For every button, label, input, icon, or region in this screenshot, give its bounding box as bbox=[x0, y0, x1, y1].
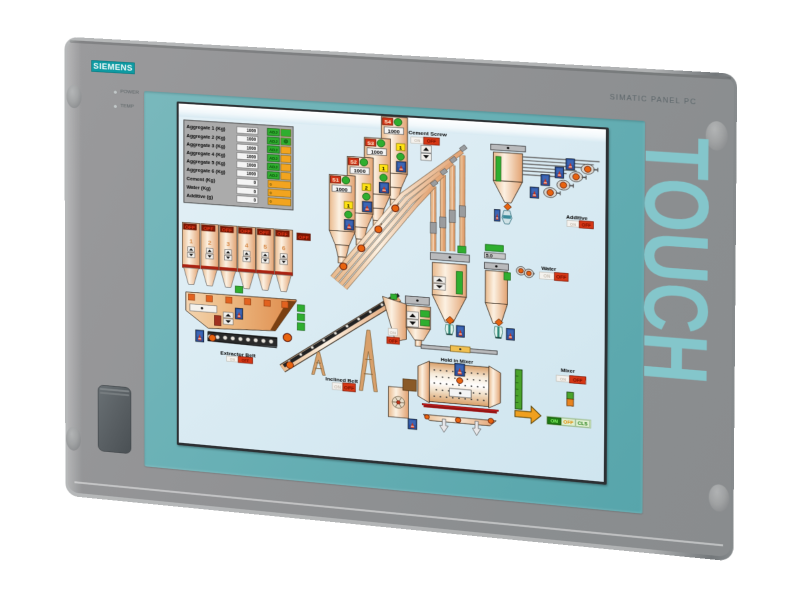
svg-text:S1: S1 bbox=[332, 177, 339, 184]
svg-text:ADJ: ADJ bbox=[269, 138, 277, 144]
svg-text:ADJ: ADJ bbox=[269, 129, 277, 135]
svg-text:OFF: OFF bbox=[389, 338, 399, 344]
svg-text:1: 1 bbox=[399, 145, 402, 151]
svg-text:ADJ: ADJ bbox=[269, 155, 277, 161]
svg-text:OFF: OFF bbox=[573, 377, 583, 383]
svg-text:CLS: CLS bbox=[578, 421, 588, 427]
svg-text:OFF: OFF bbox=[259, 230, 269, 237]
svg-text:Water: Water bbox=[541, 266, 556, 273]
svg-text:OFF: OFF bbox=[242, 358, 250, 363]
svg-text:OFF: OFF bbox=[582, 222, 592, 228]
svg-text:OFF: OFF bbox=[240, 228, 250, 235]
svg-text:OFF: OFF bbox=[563, 420, 573, 426]
svg-text:1000: 1000 bbox=[247, 128, 257, 134]
svg-text:TOUCH: TOUCH bbox=[641, 134, 716, 387]
svg-text:ADJ: ADJ bbox=[269, 147, 277, 153]
svg-text:5.0: 5.0 bbox=[486, 253, 493, 259]
svg-text:ON: ON bbox=[550, 418, 557, 424]
svg-text:OFF: OFF bbox=[277, 231, 287, 238]
svg-text:1: 1 bbox=[189, 238, 193, 245]
svg-text:S2: S2 bbox=[350, 159, 357, 166]
svg-text:ADJ: ADJ bbox=[269, 173, 277, 179]
svg-text:1: 1 bbox=[347, 203, 350, 209]
svg-text:ON: ON bbox=[230, 357, 236, 361]
svg-text:ON: ON bbox=[334, 384, 341, 390]
svg-text:2: 2 bbox=[208, 239, 212, 246]
svg-text:4: 4 bbox=[245, 242, 249, 249]
svg-text:1000: 1000 bbox=[354, 169, 366, 176]
svg-text:1000: 1000 bbox=[371, 150, 383, 157]
svg-text:OFF: OFF bbox=[298, 235, 308, 242]
svg-text:3: 3 bbox=[226, 241, 230, 248]
svg-text:OFF: OFF bbox=[222, 227, 232, 234]
svg-text:OFF: OFF bbox=[203, 226, 213, 233]
svg-text:ON: ON bbox=[560, 377, 567, 382]
svg-text:S3: S3 bbox=[367, 140, 374, 147]
svg-text:5: 5 bbox=[263, 243, 267, 250]
svg-text:1000: 1000 bbox=[247, 162, 257, 168]
svg-text:ON: ON bbox=[414, 139, 420, 144]
svg-text:2: 2 bbox=[365, 185, 368, 191]
svg-text:OFF: OFF bbox=[185, 224, 195, 231]
svg-text:ON: ON bbox=[544, 273, 551, 279]
svg-text:1000: 1000 bbox=[247, 137, 257, 143]
svg-text:ADJ: ADJ bbox=[269, 164, 277, 170]
svg-text:S4: S4 bbox=[384, 119, 391, 126]
svg-text:1000: 1000 bbox=[247, 171, 257, 177]
svg-text:OFF: OFF bbox=[556, 274, 567, 281]
svg-text:Mixer: Mixer bbox=[561, 368, 575, 375]
svg-text:ON: ON bbox=[390, 330, 396, 336]
svg-text:OFF: OFF bbox=[344, 385, 355, 392]
svg-text:6: 6 bbox=[282, 245, 286, 252]
svg-text:1: 1 bbox=[382, 166, 385, 172]
svg-text:OFF: OFF bbox=[427, 139, 437, 145]
svg-text:1000: 1000 bbox=[247, 154, 257, 160]
svg-text:1000: 1000 bbox=[336, 187, 348, 194]
svg-text:1000: 1000 bbox=[388, 128, 400, 135]
svg-text:1000: 1000 bbox=[247, 145, 257, 151]
svg-text:ON: ON bbox=[570, 222, 576, 227]
